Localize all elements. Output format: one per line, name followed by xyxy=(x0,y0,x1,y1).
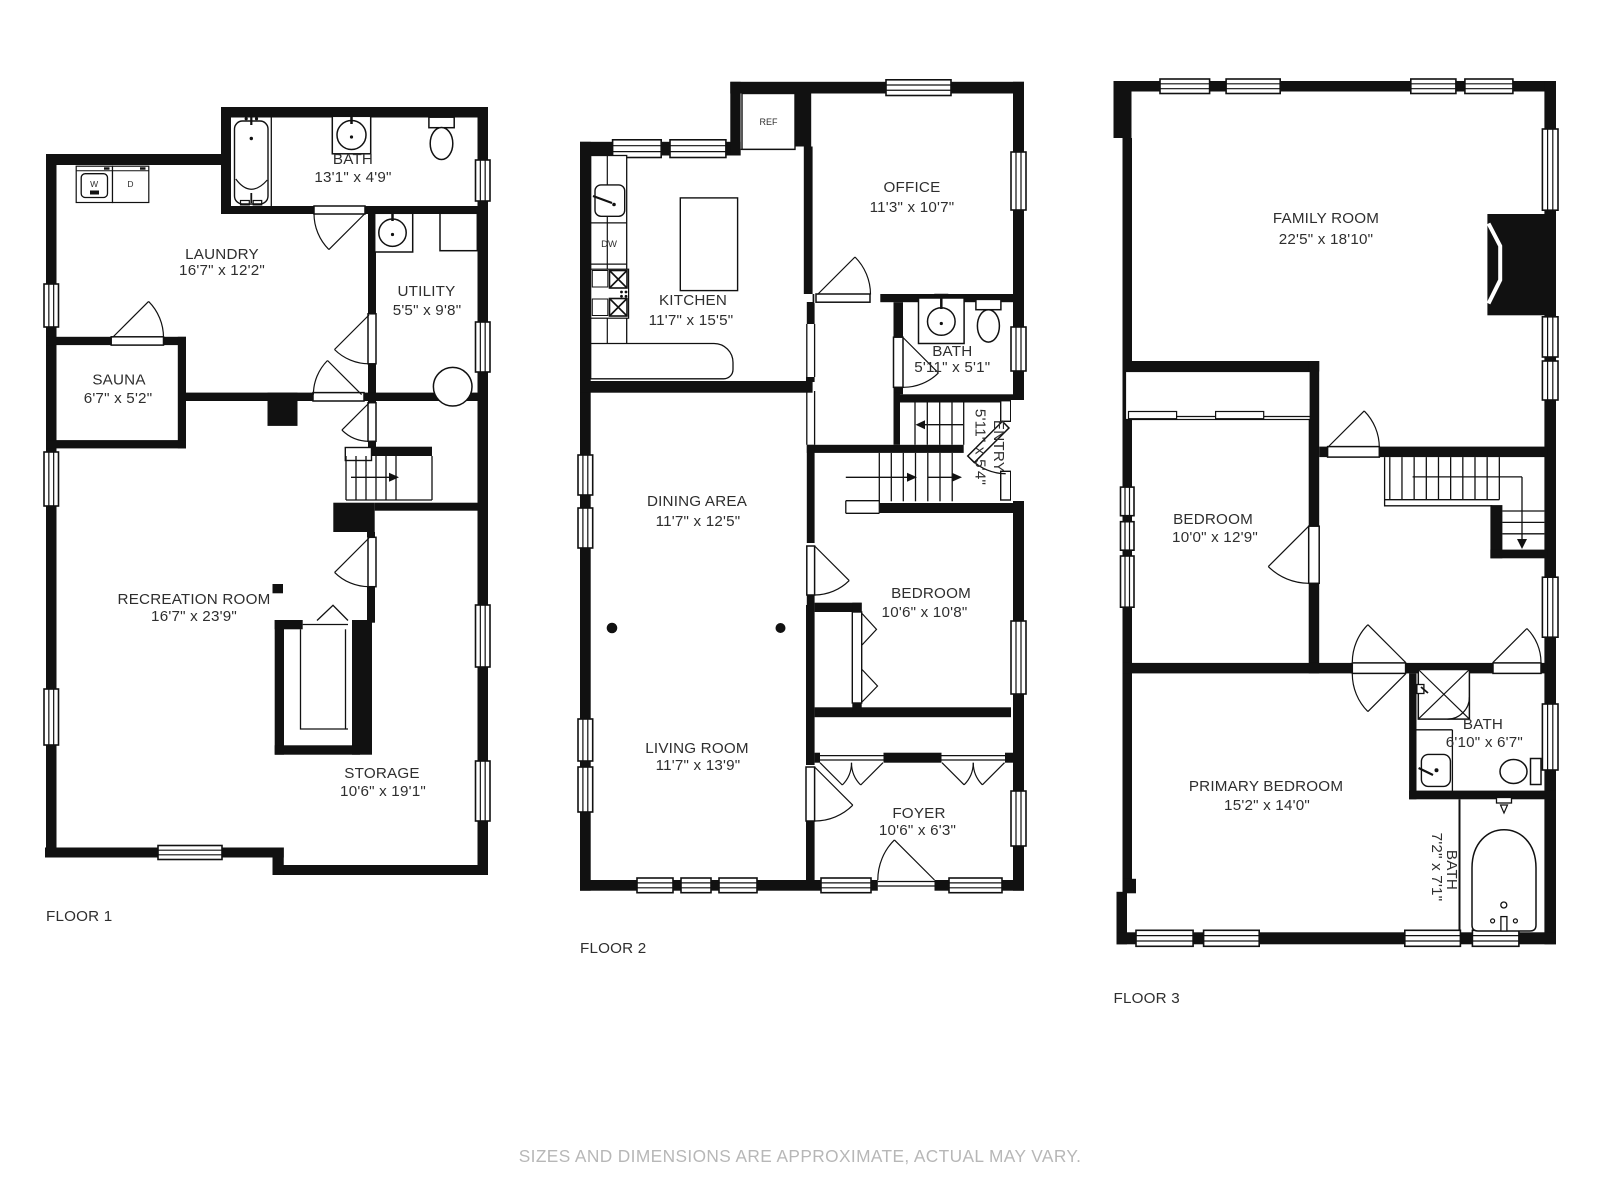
svg-text:7'2" x 7'1": 7'2" x 7'1" xyxy=(1428,833,1445,902)
svg-text:FLOOR 1: FLOOR 1 xyxy=(46,908,112,925)
svg-text:PRIMARY BEDROOM: PRIMARY BEDROOM xyxy=(1189,778,1343,795)
svg-text:16'7" x 23'9": 16'7" x 23'9" xyxy=(151,608,237,625)
svg-text:FLOOR 3: FLOOR 3 xyxy=(1114,990,1180,1007)
svg-text:11'7" x 12'5": 11'7" x 12'5" xyxy=(656,513,741,530)
svg-text:10'6" x 19'1": 10'6" x 19'1" xyxy=(340,783,426,800)
svg-text:KITCHEN: KITCHEN xyxy=(659,292,727,309)
svg-text:15'2" x 14'0": 15'2" x 14'0" xyxy=(1224,797,1310,814)
svg-text:11'7" x 13'9": 11'7" x 13'9" xyxy=(656,757,741,774)
svg-text:11'3" x 10'7": 11'3" x 10'7" xyxy=(870,199,955,216)
svg-text:BATH: BATH xyxy=(932,343,972,360)
svg-text:5'11" x 5'4": 5'11" x 5'4" xyxy=(972,409,989,485)
svg-text:ENTRY: ENTRY xyxy=(990,420,1007,472)
svg-text:LAUNDRY: LAUNDRY xyxy=(185,246,259,263)
svg-text:DINING AREA: DINING AREA xyxy=(647,493,748,510)
svg-text:FLOOR 2: FLOOR 2 xyxy=(580,940,646,957)
svg-text:UTILITY: UTILITY xyxy=(398,283,456,300)
svg-text:11'7" x 15'5": 11'7" x 15'5" xyxy=(649,312,734,329)
svg-text:W: W xyxy=(90,179,98,189)
svg-text:FOYER: FOYER xyxy=(892,805,945,822)
svg-text:13'1" x 4'9": 13'1" x 4'9" xyxy=(314,169,391,186)
svg-text:5'11" x 5'1": 5'11" x 5'1" xyxy=(914,359,990,376)
svg-text:10'6" x 10'8": 10'6" x 10'8" xyxy=(882,604,968,621)
svg-text:REF: REF xyxy=(760,117,779,127)
svg-text:LIVING ROOM: LIVING ROOM xyxy=(645,740,748,757)
svg-text:BATH: BATH xyxy=(333,151,373,168)
svg-text:5'5" x 9'8": 5'5" x 9'8" xyxy=(393,302,462,319)
svg-text:6'10" x 6'7": 6'10" x 6'7" xyxy=(1446,734,1523,751)
svg-text:STORAGE: STORAGE xyxy=(344,765,419,782)
svg-text:6'7" x 5'2": 6'7" x 5'2" xyxy=(84,390,153,407)
svg-text:RECREATION ROOM: RECREATION ROOM xyxy=(118,591,271,608)
svg-text:BATH: BATH xyxy=(1463,716,1503,733)
svg-text:10'0" x 12'9": 10'0" x 12'9" xyxy=(1172,529,1258,546)
svg-text:FAMILY ROOM: FAMILY ROOM xyxy=(1273,210,1379,227)
svg-text:SIZES AND DIMENSIONS ARE APPRO: SIZES AND DIMENSIONS ARE APPROXIMATE, AC… xyxy=(519,1146,1082,1166)
svg-text:SAUNA: SAUNA xyxy=(92,372,146,389)
svg-text:BEDROOM: BEDROOM xyxy=(1173,511,1253,528)
svg-text:OFFICE: OFFICE xyxy=(884,179,941,196)
svg-text:10'6" x 6'3": 10'6" x 6'3" xyxy=(879,822,956,839)
svg-text:DW: DW xyxy=(601,239,617,250)
svg-text:BEDROOM: BEDROOM xyxy=(891,585,971,602)
svg-text:D: D xyxy=(127,179,133,189)
svg-text:16'7" x 12'2": 16'7" x 12'2" xyxy=(179,262,265,279)
svg-text:22'5" x 18'10": 22'5" x 18'10" xyxy=(1279,231,1374,248)
